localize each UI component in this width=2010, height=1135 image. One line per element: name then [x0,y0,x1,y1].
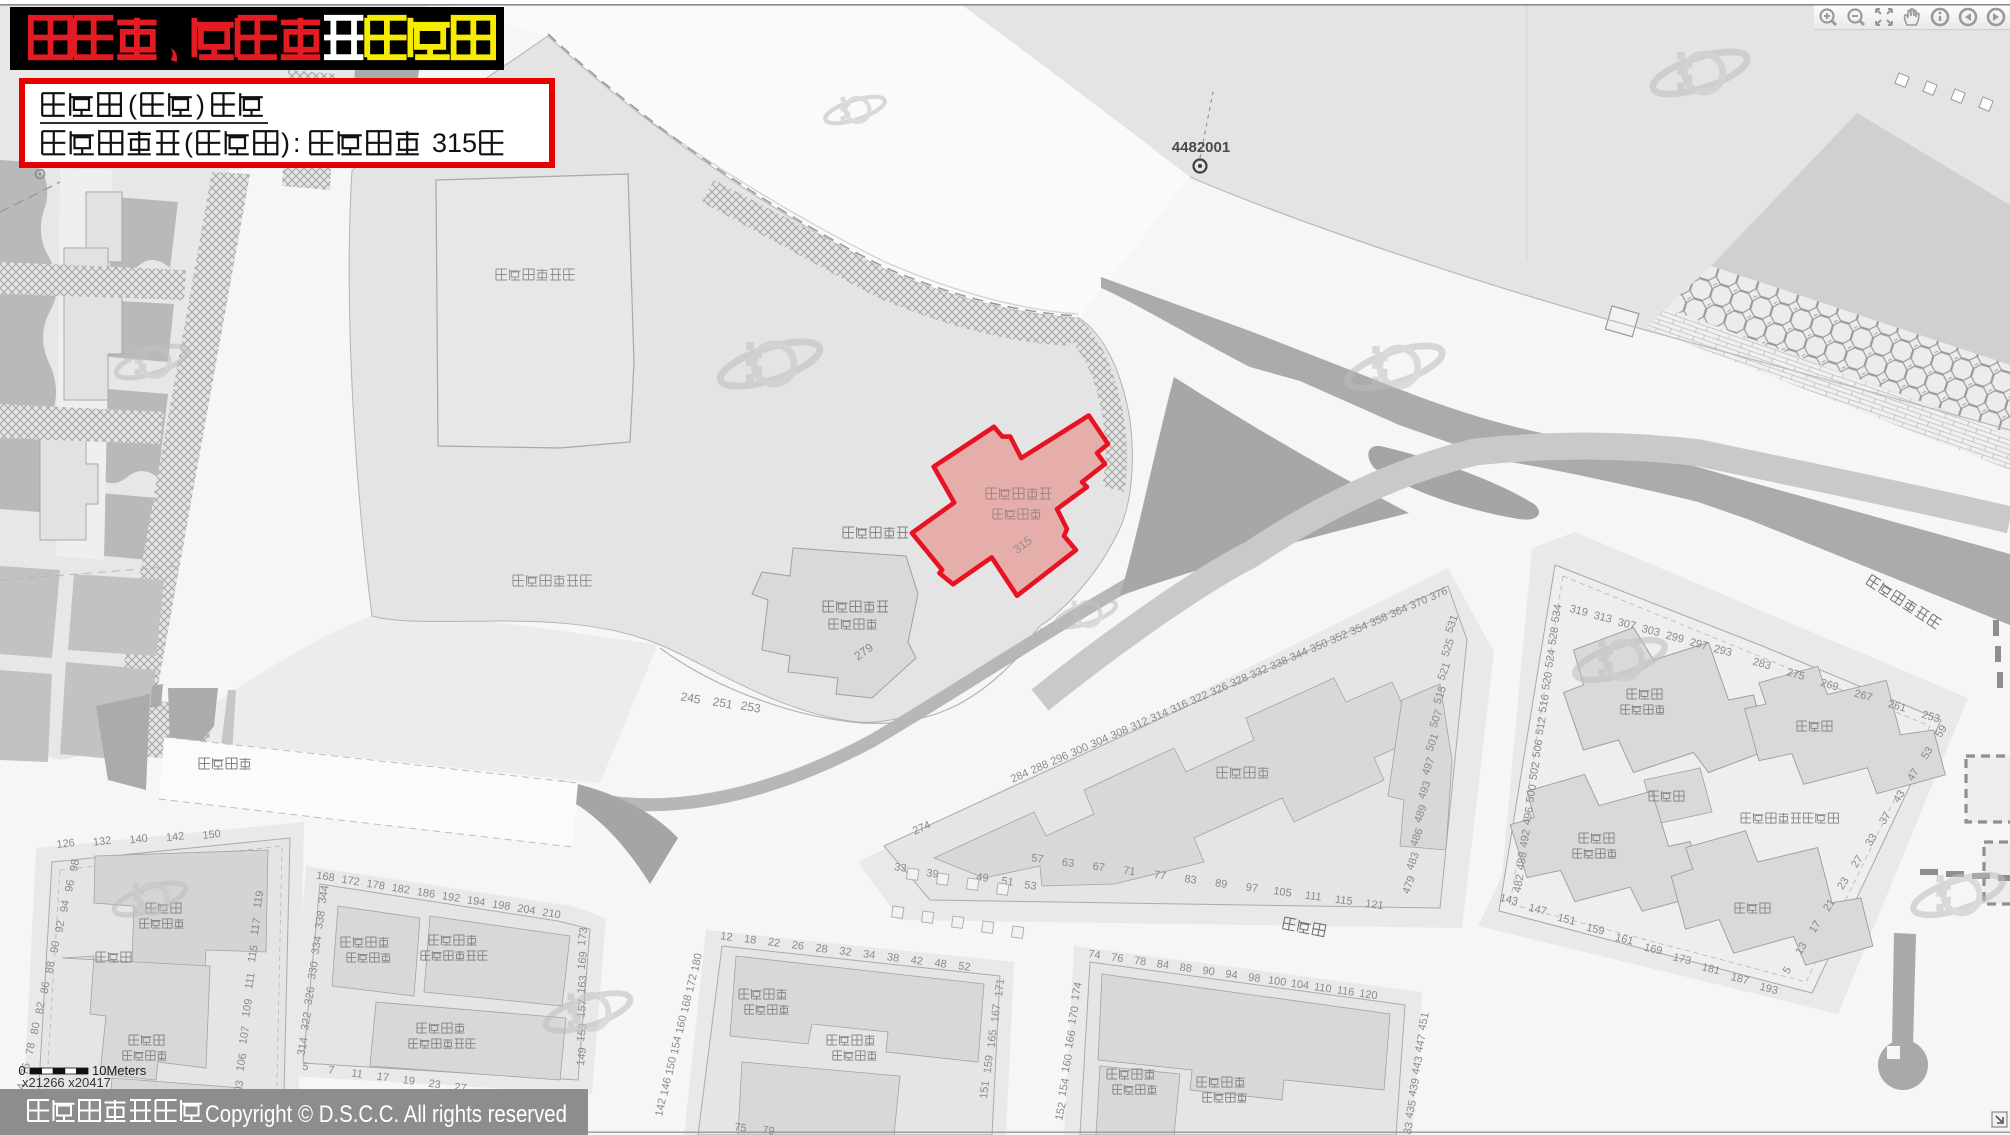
svg-text:48: 48 [934,957,948,971]
svg-text:120: 120 [1358,988,1378,1002]
svg-text:94: 94 [1225,968,1239,982]
svg-text:90: 90 [48,940,62,954]
svg-text:315: 315 [432,128,477,158]
svg-text:52: 52 [958,960,972,974]
svg-text:): ) [281,128,290,158]
svg-text:140: 140 [129,833,149,847]
svg-text:173: 173 [576,927,590,947]
svg-text:77: 77 [1153,869,1167,883]
svg-text:98: 98 [68,858,82,872]
svg-text:22: 22 [767,936,781,950]
svg-text:89: 89 [1214,877,1228,891]
svg-text:78: 78 [1133,955,1147,969]
svg-text:171: 171 [993,978,1007,998]
svg-text:167: 167 [989,1003,1003,1023]
svg-text:19: 19 [402,1074,416,1088]
svg-text:Copyright © D.S.C.C. All right: Copyright © D.S.C.C. All rights reserved [205,1101,567,1128]
svg-text:82: 82 [34,1001,48,1015]
svg-text:71: 71 [1122,865,1136,879]
svg-text::: : [293,128,301,158]
svg-text:28: 28 [815,942,829,956]
svg-text:63: 63 [1061,856,1075,870]
svg-text:116: 116 [1336,985,1355,999]
svg-text:34: 34 [862,948,876,962]
svg-text:132: 132 [92,835,112,849]
svg-text:67: 67 [1092,861,1106,875]
svg-text:98: 98 [1247,972,1261,986]
svg-text:97: 97 [1245,882,1259,896]
svg-text:38: 38 [886,951,900,965]
svg-text:x21266 x20417: x21266 x20417 [22,1075,111,1090]
svg-text:83: 83 [1184,873,1198,887]
svg-text:151: 151 [978,1080,992,1100]
svg-text:88: 88 [1179,962,1193,976]
svg-text:165: 165 [986,1029,1000,1049]
svg-text:126: 126 [56,837,76,851]
svg-text:42: 42 [910,954,924,968]
svg-text:11: 11 [351,1067,364,1080]
svg-text:57: 57 [1031,852,1045,866]
svg-text:100: 100 [1267,974,1287,988]
svg-text:105: 105 [1273,885,1293,899]
svg-text:12: 12 [720,930,734,944]
svg-text:53: 53 [1024,879,1038,893]
svg-text:92: 92 [53,919,67,933]
svg-text:18: 18 [743,933,757,947]
svg-text:149: 149 [575,1047,589,1067]
svg-text:17: 17 [376,1071,390,1085]
svg-text:79: 79 [762,1124,776,1135]
svg-text:159: 159 [982,1054,996,1074]
svg-text:86: 86 [39,981,53,995]
svg-text:121: 121 [1364,898,1384,912]
svg-text:110: 110 [1313,981,1332,995]
svg-text:150: 150 [202,828,222,842]
svg-text:104: 104 [1290,978,1310,992]
svg-text:(: ( [128,90,137,120]
svg-text:74: 74 [1088,948,1102,962]
svg-text:4482001: 4482001 [1172,139,1230,156]
svg-text:78: 78 [24,1042,38,1056]
svg-text:84: 84 [1156,958,1170,972]
svg-text:94: 94 [58,899,72,913]
svg-text:80: 80 [29,1021,43,1035]
svg-text:169: 169 [576,951,590,971]
svg-text:96: 96 [63,879,77,893]
svg-text:111: 111 [1304,890,1322,904]
svg-text:26: 26 [791,939,805,953]
svg-text:115: 115 [1334,894,1353,908]
svg-text:(: ( [184,128,193,158]
svg-text:): ) [196,90,205,120]
svg-text:163: 163 [575,975,589,995]
svg-text:88: 88 [44,960,58,974]
svg-text:76: 76 [1110,952,1124,966]
svg-text:90: 90 [1202,965,1216,979]
svg-text:32: 32 [839,945,853,959]
svg-text:142: 142 [165,830,185,844]
svg-text:33: 33 [894,861,908,875]
